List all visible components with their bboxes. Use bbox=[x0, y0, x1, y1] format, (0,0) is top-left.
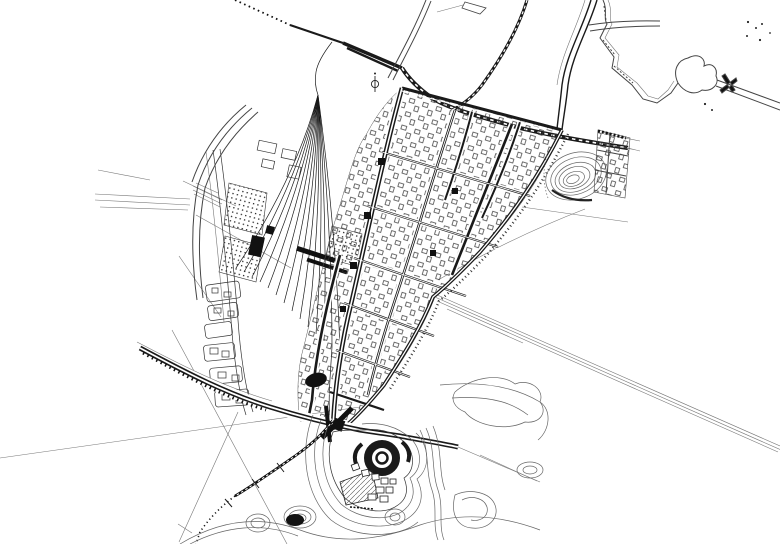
street-grid bbox=[298, 88, 568, 430]
river-north bbox=[600, 0, 780, 111]
north-north-east-road bbox=[388, 0, 431, 80]
benchmark-symbol bbox=[371, 73, 378, 93]
island-landmark-ring bbox=[355, 442, 409, 472]
dark-pond bbox=[286, 514, 304, 526]
plan-canvas[interactable] bbox=[0, 0, 780, 544]
top-symbols bbox=[371, 0, 486, 92]
rail-dotted-approach bbox=[235, 0, 290, 25]
north-road bbox=[557, 0, 660, 130]
ne-lot-grid bbox=[594, 130, 630, 198]
weir-symbol bbox=[720, 74, 737, 93]
rail-branch-north bbox=[452, 0, 527, 110]
pond-outline bbox=[676, 56, 717, 93]
station-building bbox=[248, 235, 265, 257]
south-branch-railway bbox=[235, 420, 333, 496]
north-road-spur bbox=[589, 21, 660, 31]
plan-viewport[interactable] bbox=[0, 0, 780, 544]
small-plot bbox=[462, 2, 486, 14]
scatter-dots bbox=[704, 21, 771, 111]
island-caption-marks bbox=[350, 507, 374, 509]
